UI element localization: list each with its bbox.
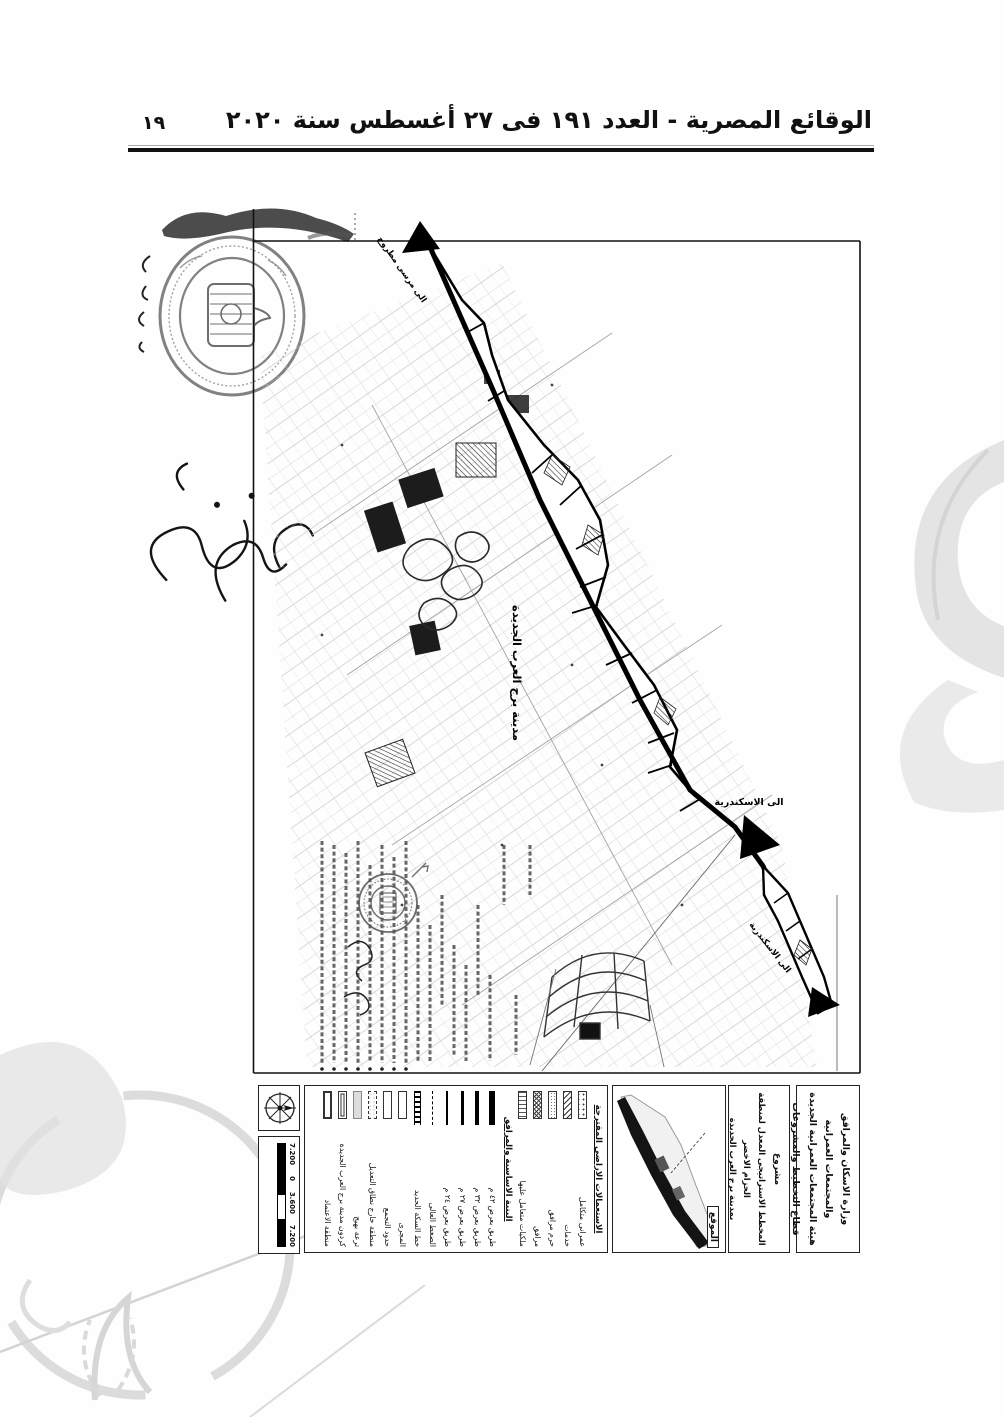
scale-bar-box: 7.200 3.600 0 7.200 <box>258 1136 300 1254</box>
symbol-community-boundary <box>383 1091 392 1119</box>
city-label: مدينة برج العرب الجديدة <box>509 605 524 741</box>
legend-item: المجرى <box>395 1089 410 1249</box>
map-figure: الى مرسى مطروح الى الاسكندرية الى الاسكن… <box>252 205 862 1075</box>
legend-item: خط السكة الحديد <box>410 1089 425 1249</box>
notes-bullets <box>320 1067 408 1071</box>
symbol-approval-area <box>323 1091 332 1119</box>
legend-item: طريق بعرض ٢٧ م <box>455 1089 470 1249</box>
symbol-watercourse <box>398 1091 407 1119</box>
ministry-line1: وزارة الاسكان والمرافق والمجتمعات العمرا… <box>820 1086 853 1252</box>
symbol-canal <box>353 1091 362 1119</box>
location-label: الموقع <box>707 1206 719 1248</box>
swatch-services-hatch <box>563 1091 572 1119</box>
swatch-urban-dots <box>578 1091 587 1119</box>
project-label: مشروع <box>769 1086 784 1252</box>
project-line1: المخطط الاستراتيجى المعدل لمنطقة الحزام … <box>740 1086 769 1252</box>
legend-item: طريق بعرض ٣٢ م <box>470 1089 485 1249</box>
scale-bar <box>277 1143 286 1247</box>
legend-landuse-header: الاستعمالات الاراضى المقترحة <box>590 1089 605 1249</box>
scale-value-3: 0 <box>288 1176 296 1181</box>
location-inset-box: الموقع <box>612 1085 726 1253</box>
legend-item: كردون مدينة برج العرب الجديدة <box>335 1089 350 1249</box>
legend-item: مرافق <box>530 1089 545 1249</box>
scale-value-1: 7.200 <box>288 1225 296 1247</box>
legend-item: طريق بعرض ٤٢ م <box>485 1089 500 1249</box>
project-box: مشروع المخطط الاستراتيجى المعدل لمنطقة ا… <box>728 1085 790 1253</box>
page-number: ١٩ <box>142 112 165 134</box>
symbol-outside-amendment <box>368 1091 377 1119</box>
direction-label-mid: الى الاسكندرية <box>714 797 783 808</box>
legend-item: عمرانى متكامل <box>575 1089 590 1249</box>
legend-item: ملكيات متعامل عليها <box>515 1089 530 1249</box>
legend-item: طريق بعرض ٢٤ م <box>440 1089 455 1249</box>
swatch-utilities <box>533 1091 542 1119</box>
swatch-transacted-properties <box>518 1091 527 1119</box>
symbol-railway <box>414 1091 421 1125</box>
symbol-road-42m <box>490 1091 496 1125</box>
header-rule-thin <box>128 145 874 146</box>
legend-box: الاستعمالات الاراضى المقترحة عمرانى متكا… <box>304 1085 608 1253</box>
legend-item: حرم مرافق <box>545 1089 560 1249</box>
swatch-utility-buffer <box>548 1091 557 1119</box>
legend-item: ترعة بهيج <box>350 1089 365 1249</box>
watermark-right-swirl <box>858 430 1004 820</box>
legend-item: منطقة خارج نطاق التعديل <box>365 1089 380 1249</box>
field-grid <box>260 263 817 1067</box>
legend-item: منطقة الاعتماد <box>320 1089 335 1249</box>
header-rule <box>128 148 874 152</box>
symbol-road-32m <box>476 1091 480 1125</box>
ministry-line2: هيئة المجتمعات العمرانية الجديدة <box>803 1086 820 1252</box>
gazette-scanned-page: الوقائع المصرية - العدد ١٩١ فى ٢٧ أغسطس … <box>0 0 1004 1417</box>
scale-value-2: 3.600 <box>288 1192 296 1214</box>
legend-infra-header: البنية الاساسية والمرافق <box>500 1089 515 1249</box>
legend-item: خدمات <box>560 1089 575 1249</box>
scale-value-4: 7.200 <box>288 1143 296 1165</box>
title-block-strip: وزارة الاسكان والمرافق والمجتمعات العمرا… <box>255 1082 862 1258</box>
symbol-city-cordon <box>338 1091 347 1119</box>
legend-item: الضغط العالى <box>425 1089 440 1249</box>
project-line2: بمدينة برج العرب الجديدة <box>726 1086 740 1252</box>
handwritten-mark <box>128 250 164 380</box>
symbol-road-24m <box>447 1091 449 1125</box>
arrow-top <box>402 221 440 253</box>
symbol-high-voltage <box>432 1091 433 1125</box>
gazette-title: الوقائع المصرية - العدد ١٩١ فى ٢٧ أغسطس … <box>226 106 872 134</box>
ministry-box: وزارة الاسكان والمرافق والمجتمعات العمرا… <box>796 1085 860 1253</box>
legend-item: حدود التجمع <box>380 1089 395 1249</box>
compass-rose-icon <box>261 1087 299 1129</box>
symbol-road-27m <box>461 1091 464 1125</box>
compass-box <box>258 1085 300 1131</box>
